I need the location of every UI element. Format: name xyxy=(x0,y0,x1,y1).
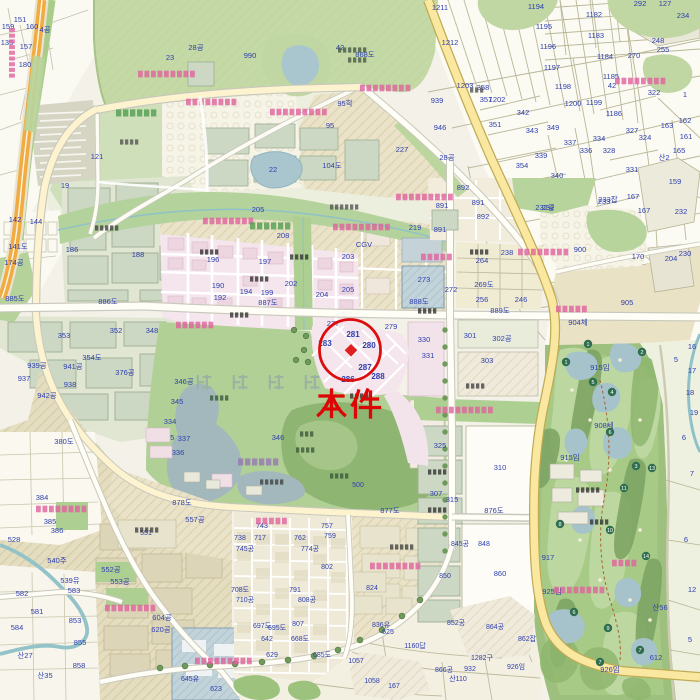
svg-text:10: 10 xyxy=(607,528,613,534)
svg-text:552공: 552공 xyxy=(101,565,121,574)
svg-text:315: 315 xyxy=(446,495,459,504)
svg-text:939: 939 xyxy=(431,96,444,105)
svg-text:1282구: 1282구 xyxy=(471,654,494,662)
svg-text:310: 310 xyxy=(494,463,507,472)
svg-text:889도: 889도 xyxy=(490,306,510,315)
svg-text:336: 336 xyxy=(172,448,185,457)
svg-text:697도: 697도 xyxy=(253,622,272,630)
svg-text:248: 248 xyxy=(652,36,665,45)
svg-text:204: 204 xyxy=(665,254,678,263)
svg-text:1160답: 1160답 xyxy=(404,641,426,650)
svg-text:1: 1 xyxy=(586,342,589,348)
svg-text:142: 142 xyxy=(9,215,22,224)
svg-text:337: 337 xyxy=(564,138,577,147)
svg-text:346: 346 xyxy=(272,433,285,442)
svg-text:620공: 620공 xyxy=(151,625,171,634)
svg-text:877도: 877도 xyxy=(380,506,400,515)
svg-text:256: 256 xyxy=(476,295,489,304)
svg-text:353: 353 xyxy=(58,331,71,340)
svg-text:174공: 174공 xyxy=(4,258,24,267)
svg-text:190: 190 xyxy=(212,281,225,290)
svg-text:642: 642 xyxy=(261,636,273,643)
svg-text:629: 629 xyxy=(266,652,278,659)
svg-text:324: 324 xyxy=(639,133,652,142)
svg-text:915임: 915임 xyxy=(560,453,579,462)
svg-text:2: 2 xyxy=(640,350,643,356)
svg-text:1186: 1186 xyxy=(606,109,622,118)
svg-text:926임: 926임 xyxy=(600,665,619,674)
svg-text:762: 762 xyxy=(294,535,306,542)
svg-text:188: 188 xyxy=(132,250,145,259)
svg-text:CGV: CGV xyxy=(356,240,372,249)
svg-text:238: 238 xyxy=(501,248,514,257)
svg-text:352: 352 xyxy=(110,326,123,335)
svg-text:539유: 539유 xyxy=(60,576,80,585)
svg-text:848: 848 xyxy=(478,541,490,548)
svg-text:6: 6 xyxy=(684,535,688,544)
svg-text:8: 8 xyxy=(558,522,561,528)
svg-text:738: 738 xyxy=(234,535,246,542)
svg-text:산2: 산2 xyxy=(658,152,669,162)
svg-text:866공: 866공 xyxy=(435,666,454,674)
svg-text:165: 165 xyxy=(673,146,686,155)
svg-text:산27: 산27 xyxy=(17,650,32,660)
svg-text:853: 853 xyxy=(69,616,82,625)
svg-text:581: 581 xyxy=(31,607,44,616)
svg-text:339: 339 xyxy=(535,151,548,160)
svg-text:708도: 708도 xyxy=(231,586,250,594)
svg-text:280: 280 xyxy=(362,341,376,350)
svg-text:208: 208 xyxy=(277,231,290,240)
svg-text:900: 900 xyxy=(574,245,587,254)
svg-text:95: 95 xyxy=(326,121,334,130)
svg-text:7: 7 xyxy=(598,660,601,666)
svg-text:7: 7 xyxy=(690,469,694,478)
svg-text:159: 159 xyxy=(669,177,682,186)
svg-text:281: 281 xyxy=(346,330,360,339)
svg-text:887도: 887도 xyxy=(258,298,278,307)
svg-text:1199: 1199 xyxy=(586,98,602,107)
svg-text:3: 3 xyxy=(634,464,637,470)
svg-text:292: 292 xyxy=(634,0,647,8)
svg-text:301: 301 xyxy=(464,331,477,340)
svg-text:23: 23 xyxy=(166,53,174,62)
svg-text:612: 612 xyxy=(650,653,663,662)
svg-text:202: 202 xyxy=(285,279,298,288)
svg-text:227: 227 xyxy=(396,145,409,154)
svg-text:192: 192 xyxy=(214,293,227,302)
svg-text:1196: 1196 xyxy=(540,42,556,51)
svg-text:915임: 915임 xyxy=(590,363,609,372)
svg-text:287: 287 xyxy=(358,363,372,372)
svg-text:845공: 845공 xyxy=(451,540,470,548)
svg-text:357: 357 xyxy=(480,95,493,104)
svg-text:151: 151 xyxy=(14,15,27,24)
svg-text:327: 327 xyxy=(626,126,639,135)
svg-text:685도: 685도 xyxy=(313,651,332,659)
svg-text:산56: 산56 xyxy=(652,602,667,612)
svg-text:938: 938 xyxy=(64,380,77,389)
svg-text:95학: 95학 xyxy=(337,98,352,108)
svg-text:348: 348 xyxy=(146,326,159,335)
svg-text:852공: 852공 xyxy=(447,619,466,627)
svg-text:5: 5 xyxy=(688,635,692,644)
svg-text:345: 345 xyxy=(171,397,184,406)
svg-text:878도: 878도 xyxy=(172,498,192,507)
svg-text:380도: 380도 xyxy=(54,437,74,446)
svg-text:939공: 939공 xyxy=(27,361,47,370)
svg-text:28공: 28공 xyxy=(439,153,454,162)
svg-text:334: 334 xyxy=(593,134,606,143)
svg-text:891: 891 xyxy=(436,201,449,210)
svg-text:1183: 1183 xyxy=(588,31,604,40)
svg-text:264: 264 xyxy=(476,256,489,265)
svg-text:932: 932 xyxy=(464,666,476,673)
svg-text:858: 858 xyxy=(73,661,86,670)
svg-text:141도: 141도 xyxy=(8,242,28,251)
svg-text:583: 583 xyxy=(68,586,81,595)
svg-text:1211: 1211 xyxy=(432,3,448,12)
svg-text:808공: 808공 xyxy=(298,596,317,604)
svg-text:757: 757 xyxy=(321,523,333,530)
svg-text:824: 824 xyxy=(366,585,378,592)
svg-text:1194: 1194 xyxy=(528,2,544,11)
svg-text:121: 121 xyxy=(91,152,104,161)
svg-text:144: 144 xyxy=(30,217,43,226)
svg-text:759: 759 xyxy=(324,533,336,540)
svg-text:1200: 1200 xyxy=(565,99,582,108)
svg-text:862잡: 862잡 xyxy=(518,634,537,643)
svg-text:917: 917 xyxy=(542,553,555,562)
svg-text:888도: 888도 xyxy=(409,297,429,306)
svg-text:269도: 269도 xyxy=(474,280,494,289)
svg-text:386: 386 xyxy=(51,526,64,535)
svg-text:384: 384 xyxy=(36,493,49,502)
svg-text:1212: 1212 xyxy=(442,38,459,47)
svg-text:22: 22 xyxy=(269,165,277,174)
svg-text:42: 42 xyxy=(608,81,616,90)
svg-text:13: 13 xyxy=(649,466,655,472)
svg-text:160: 160 xyxy=(26,22,39,31)
svg-text:5: 5 xyxy=(591,380,594,386)
svg-text:990: 990 xyxy=(244,51,257,60)
svg-text:230: 230 xyxy=(679,249,692,258)
svg-text:343: 343 xyxy=(526,126,539,135)
svg-text:28공: 28공 xyxy=(188,43,203,52)
svg-text:791: 791 xyxy=(289,587,301,594)
svg-text:4공: 4공 xyxy=(39,25,50,34)
svg-text:272: 272 xyxy=(445,285,458,294)
svg-text:255: 255 xyxy=(657,45,670,54)
svg-text:322: 322 xyxy=(648,88,661,97)
svg-text:385: 385 xyxy=(44,517,57,526)
svg-text:6: 6 xyxy=(608,430,611,436)
svg-text:625: 625 xyxy=(382,629,394,636)
svg-text:342: 342 xyxy=(517,108,530,117)
svg-text:774공: 774공 xyxy=(301,545,320,553)
svg-text:307: 307 xyxy=(430,489,443,498)
svg-text:376공: 376공 xyxy=(115,368,135,377)
svg-text:802: 802 xyxy=(321,564,333,571)
svg-text:197: 197 xyxy=(259,257,272,266)
svg-text:892: 892 xyxy=(477,212,490,221)
svg-text:584: 584 xyxy=(11,623,24,632)
svg-text:5: 5 xyxy=(674,355,678,364)
svg-text:233잡: 233잡 xyxy=(598,194,618,204)
svg-text:4: 4 xyxy=(610,390,613,396)
svg-text:16: 16 xyxy=(688,342,696,351)
svg-text:346공: 346공 xyxy=(174,377,194,386)
svg-text:942공: 942공 xyxy=(37,391,57,400)
svg-text:553공: 553공 xyxy=(110,577,130,586)
svg-text:351: 351 xyxy=(489,120,502,129)
svg-text:163: 163 xyxy=(661,121,674,130)
svg-text:157: 157 xyxy=(20,42,33,51)
svg-text:886도: 886도 xyxy=(98,297,118,306)
svg-text:905: 905 xyxy=(621,298,634,307)
svg-text:855: 855 xyxy=(74,638,87,647)
svg-text:885도: 885도 xyxy=(5,294,25,303)
svg-text:904체: 904체 xyxy=(568,317,588,327)
svg-text:1058: 1058 xyxy=(364,678,380,685)
svg-text:717: 717 xyxy=(254,535,266,542)
svg-text:876도: 876도 xyxy=(484,506,504,515)
svg-text:산35: 산35 xyxy=(37,670,52,680)
svg-text:354: 354 xyxy=(516,161,529,170)
svg-text:1057: 1057 xyxy=(348,658,364,665)
svg-text:303: 303 xyxy=(481,356,494,365)
svg-text:279: 279 xyxy=(385,322,398,331)
svg-text:167: 167 xyxy=(388,683,400,690)
svg-text:204: 204 xyxy=(316,290,329,299)
svg-text:205: 205 xyxy=(252,205,265,214)
svg-text:645유: 645유 xyxy=(181,675,200,683)
svg-text:926임: 926임 xyxy=(507,663,525,671)
svg-text:170: 170 xyxy=(632,252,645,261)
svg-text:12: 12 xyxy=(688,585,696,594)
svg-text:1197: 1197 xyxy=(544,63,560,72)
svg-text:1198: 1198 xyxy=(555,82,571,91)
svg-text:180: 180 xyxy=(19,60,32,69)
svg-text:337: 337 xyxy=(178,434,191,443)
svg-text:334: 334 xyxy=(164,417,177,426)
svg-text:273: 273 xyxy=(418,275,431,284)
svg-text:836유: 836유 xyxy=(372,621,391,629)
svg-text:194: 194 xyxy=(240,287,253,296)
svg-text:9: 9 xyxy=(606,626,609,632)
svg-text:162: 162 xyxy=(679,116,692,125)
svg-text:205: 205 xyxy=(342,285,355,294)
svg-text:17: 17 xyxy=(688,366,696,375)
svg-text:668도: 668도 xyxy=(291,635,310,643)
svg-text:325: 325 xyxy=(434,441,447,450)
svg-text:582: 582 xyxy=(16,589,29,598)
svg-text:302공: 302공 xyxy=(492,334,512,343)
svg-text:623: 623 xyxy=(210,686,222,693)
svg-text:167: 167 xyxy=(638,206,651,215)
svg-text:540주: 540주 xyxy=(47,556,67,565)
svg-text:1195: 1195 xyxy=(536,22,552,31)
svg-text:331: 331 xyxy=(626,165,639,174)
svg-text:946: 946 xyxy=(434,123,447,132)
svg-text:941공: 941공 xyxy=(63,362,83,371)
svg-text:604공: 604공 xyxy=(152,613,172,622)
svg-text:203: 203 xyxy=(342,252,355,261)
svg-text:18: 18 xyxy=(686,388,694,397)
svg-text:14: 14 xyxy=(643,554,649,560)
svg-text:1182: 1182 xyxy=(586,10,602,19)
svg-text:219: 219 xyxy=(409,223,422,232)
svg-text:246: 246 xyxy=(515,295,528,304)
svg-text:288: 288 xyxy=(371,372,385,381)
svg-text:328: 328 xyxy=(603,146,616,155)
svg-text:산110: 산110 xyxy=(449,674,467,683)
svg-text:1184: 1184 xyxy=(597,52,613,61)
svg-text:892: 892 xyxy=(457,183,470,192)
svg-text:196: 196 xyxy=(207,255,220,264)
svg-text:331: 331 xyxy=(422,351,435,360)
svg-text:891: 891 xyxy=(434,225,447,234)
svg-text:11: 11 xyxy=(621,486,627,492)
svg-text:330: 330 xyxy=(418,335,431,344)
svg-text:6: 6 xyxy=(682,433,686,442)
svg-text:891: 891 xyxy=(472,198,485,207)
svg-text:528: 528 xyxy=(8,535,21,544)
svg-text:6: 6 xyxy=(572,610,575,616)
svg-text:104도: 104도 xyxy=(322,161,342,170)
svg-text:167: 167 xyxy=(627,192,640,201)
svg-text:807: 807 xyxy=(292,621,304,628)
svg-text:354도: 354도 xyxy=(82,353,102,362)
svg-text:7: 7 xyxy=(638,648,641,654)
svg-text:234: 234 xyxy=(677,11,690,20)
svg-text:557공: 557공 xyxy=(185,515,205,524)
svg-text:349: 349 xyxy=(547,123,560,132)
svg-text:19: 19 xyxy=(61,181,69,190)
svg-text:850: 850 xyxy=(439,573,451,580)
svg-text:500: 500 xyxy=(352,482,364,489)
svg-text:710공: 710공 xyxy=(236,596,255,604)
svg-text:270: 270 xyxy=(628,51,641,60)
svg-text:186: 186 xyxy=(66,245,79,254)
svg-text:1: 1 xyxy=(683,90,687,99)
svg-text:1: 1 xyxy=(564,360,567,366)
svg-text:745공: 745공 xyxy=(236,545,255,553)
svg-text:937: 937 xyxy=(18,374,31,383)
svg-text:232: 232 xyxy=(675,207,688,216)
svg-text:336: 336 xyxy=(580,146,593,155)
svg-text:161: 161 xyxy=(680,132,693,141)
svg-text:127: 127 xyxy=(659,0,672,8)
svg-text:860: 860 xyxy=(494,569,507,578)
svg-text:864공: 864공 xyxy=(486,623,505,631)
svg-text:199: 199 xyxy=(261,288,274,297)
svg-text:340: 340 xyxy=(551,171,564,180)
svg-text:232공: 232공 xyxy=(535,203,555,212)
svg-text:19: 19 xyxy=(690,408,698,417)
